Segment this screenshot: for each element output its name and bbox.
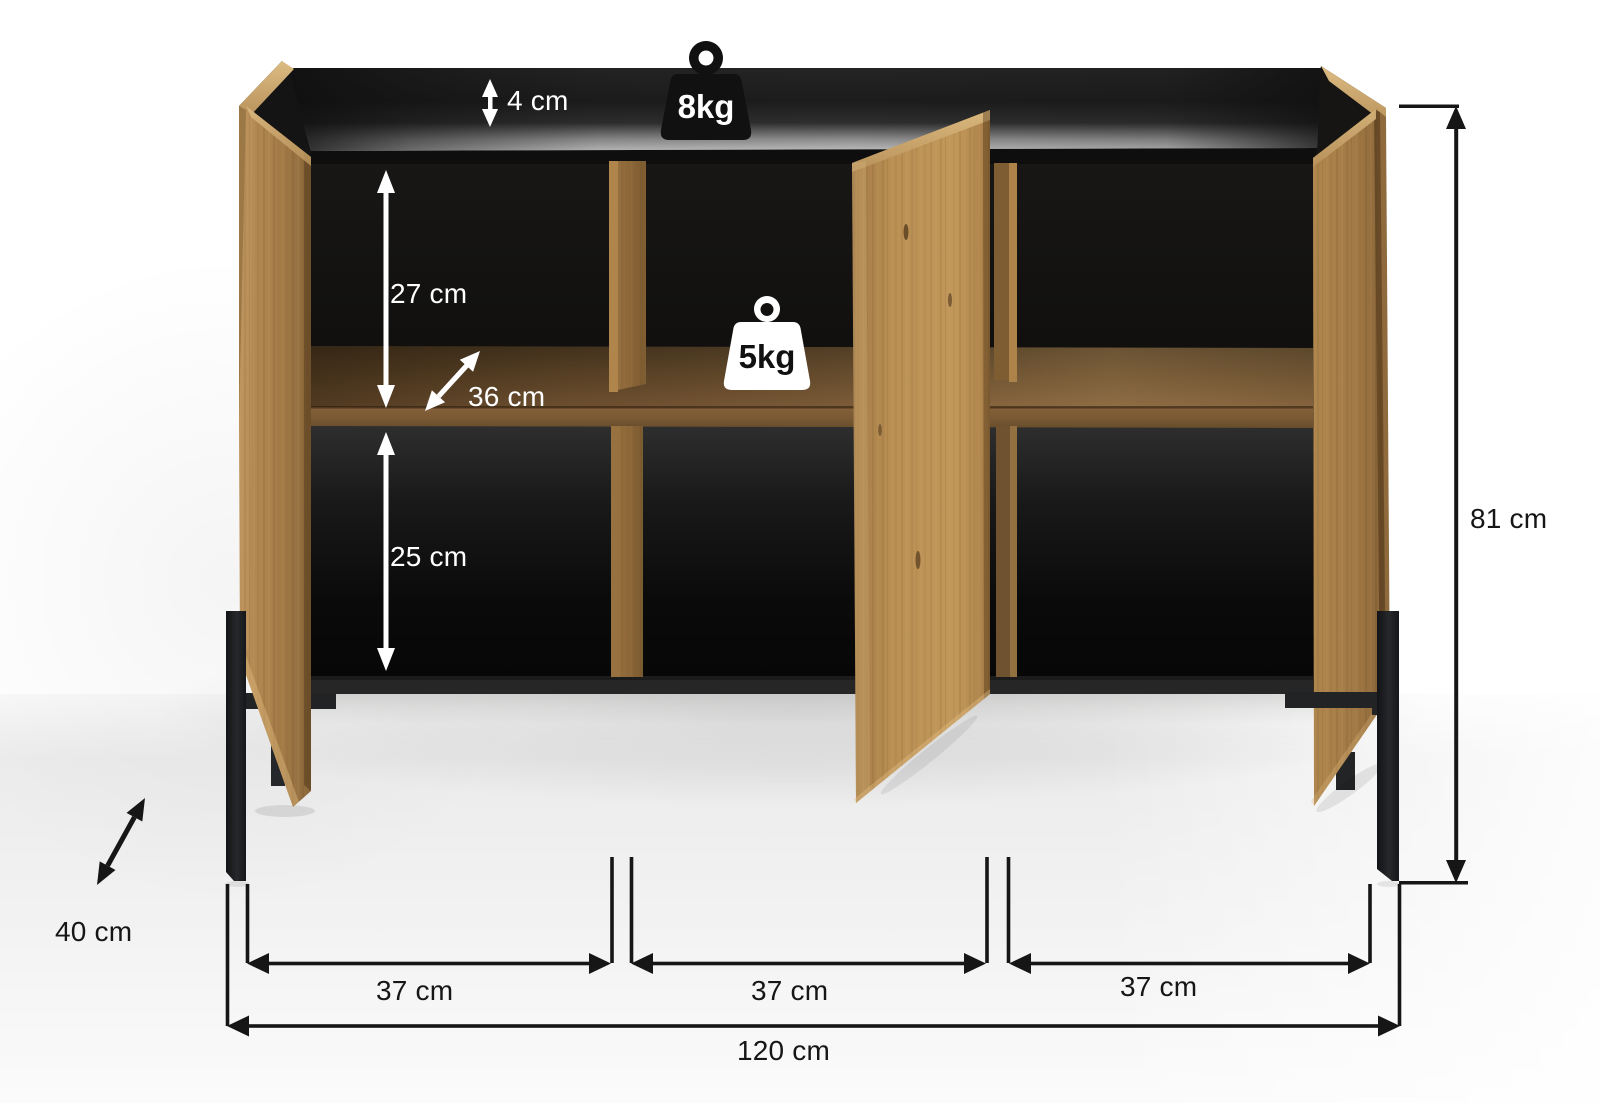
svg-text:40 cm: 40 cm bbox=[55, 916, 132, 947]
svg-text:120 cm: 120 cm bbox=[737, 1035, 830, 1066]
svg-text:27 cm: 27 cm bbox=[390, 278, 467, 309]
svg-text:37 cm: 37 cm bbox=[751, 975, 828, 1006]
svg-text:25 cm: 25 cm bbox=[390, 541, 467, 572]
svg-text:37 cm: 37 cm bbox=[376, 975, 453, 1006]
svg-text:37 cm: 37 cm bbox=[1120, 971, 1197, 1002]
svg-text:4 cm: 4 cm bbox=[507, 85, 568, 116]
svg-text:8kg: 8kg bbox=[678, 88, 735, 125]
svg-text:36 cm: 36 cm bbox=[468, 381, 545, 412]
svg-text:81 cm: 81 cm bbox=[1470, 503, 1547, 534]
svg-text:5kg: 5kg bbox=[739, 338, 796, 375]
